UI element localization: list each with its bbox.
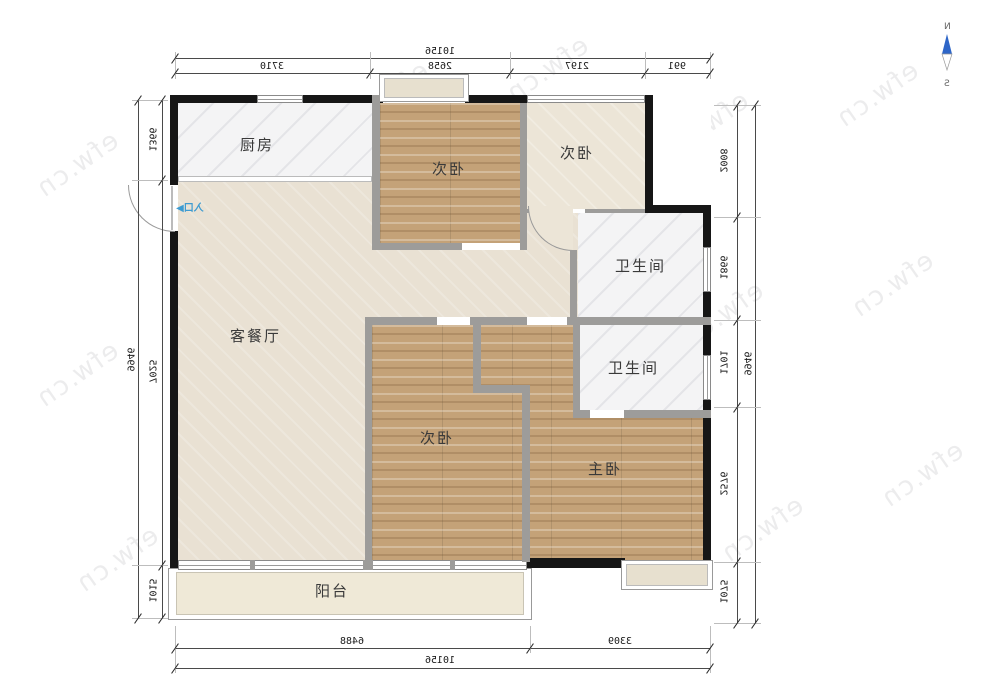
balcony-sliding-window <box>178 560 527 570</box>
entrance-arrow-icon: ▶ <box>176 203 184 214</box>
exterior-notch <box>653 95 711 206</box>
compass-south-label: S <box>944 79 950 89</box>
door-opening <box>462 243 520 250</box>
door-opening <box>527 317 567 325</box>
dim-line-bottom-segments <box>175 648 711 649</box>
exterior-wall-segment <box>703 400 711 568</box>
room-label-bedroom-top: 次卧 <box>432 158 466 179</box>
room-label-kitchen: 厨房 <box>240 134 274 155</box>
room-label-bathroom-lower: 卫生间 <box>608 357 659 378</box>
compass: N S <box>936 14 958 90</box>
interior-wall-segment <box>372 243 462 250</box>
exterior-wall-segment <box>527 558 625 568</box>
exterior-wall-segment <box>645 95 653 213</box>
dim-line-right-segments <box>737 105 738 624</box>
dim-label-top-seg-2: 2658 <box>414 61 466 72</box>
dim-label-top-total: 10156 <box>414 46 466 57</box>
window <box>257 95 303 103</box>
dim-line-left-total <box>138 100 139 619</box>
entry-door-swing-arc <box>128 185 175 232</box>
exterior-wall-segment <box>170 95 257 103</box>
bay-window-sill <box>626 564 708 586</box>
balcony-floor <box>176 572 524 615</box>
window <box>703 247 711 292</box>
dim-label-left-seg-2: 7025 <box>147 346 158 398</box>
dim-line-bottom-total <box>175 668 711 669</box>
dim-label-left-seg-1: 1366 <box>147 114 158 166</box>
window-mullion <box>450 560 455 570</box>
dim-label-right-seg-1: 2008 <box>718 135 729 187</box>
compass-north-label: N <box>944 22 951 32</box>
room-label-living: 客餐厅 <box>230 325 281 346</box>
interior-wall-segment <box>520 103 527 250</box>
interior-wall-segment <box>365 317 372 562</box>
dim-label-top-seg-1: 3710 <box>246 61 298 72</box>
dim-line-right-total <box>755 105 756 624</box>
watermark: efw.cn <box>875 436 970 515</box>
watermark: efw.cn <box>30 126 125 205</box>
exterior-wall-segment <box>170 95 178 185</box>
watermark: efw.cn <box>30 336 125 415</box>
dim-label-right-seg-5: 1075 <box>718 566 729 618</box>
dim-label-top-seg-4: 991 <box>651 61 703 72</box>
watermark: efw.cn <box>845 246 940 325</box>
dim-extension <box>645 52 646 79</box>
bay-window-sill <box>384 78 464 98</box>
interior-wall-segment <box>372 95 380 250</box>
north-arrow-icon <box>940 33 954 71</box>
exterior-wall-segment <box>645 205 711 213</box>
kitchen-counter-line <box>178 176 372 182</box>
dim-label-right-seg-3: 1701 <box>718 337 729 389</box>
window <box>703 355 711 400</box>
door-opening <box>437 317 470 325</box>
exterior-wall-segment <box>170 230 178 568</box>
entrance-label: 入口 <box>184 203 204 214</box>
room-label-master: 主卧 <box>588 458 622 479</box>
dim-line-top-segments <box>175 73 711 74</box>
dim-label-right-total: 9946 <box>742 338 753 390</box>
door-opening <box>590 410 624 418</box>
room-label-balcony: 阳台 <box>315 580 349 601</box>
dim-label-bottom-seg-2: 3309 <box>594 636 646 647</box>
dim-extension <box>510 52 511 79</box>
interior-wall-segment <box>473 317 481 392</box>
dim-line-top-total <box>175 58 711 59</box>
dim-label-left-seg-3: 1015 <box>147 565 158 617</box>
dim-label-right-seg-4: 2576 <box>718 458 729 510</box>
room-label-bedroom-top-right: 次卧 <box>560 142 594 163</box>
interior-wall-segment <box>522 392 530 562</box>
entrance-marker: 入口▶ <box>176 199 204 214</box>
floorplan-canvas: efw.cn efw.cn efw.cn efw.cn efw.cn efw.c… <box>0 0 1000 685</box>
window <box>527 95 645 103</box>
room-label-bathroom-upper: 卫生间 <box>615 255 666 276</box>
exterior-wall-segment <box>465 95 527 103</box>
exterior-wall-segment <box>303 95 383 103</box>
dim-extension <box>370 52 371 79</box>
dim-label-bottom-total: 10156 <box>414 655 466 666</box>
dim-label-bottom-seg-1: 6488 <box>326 636 378 647</box>
exterior-wall-segment <box>703 213 711 247</box>
dim-label-top-seg-3: 2197 <box>551 61 603 72</box>
watermark: efw.cn <box>830 56 925 135</box>
floor-kitchen <box>178 103 372 177</box>
watermark: efw.cn <box>715 491 810 570</box>
interior-wall-segment <box>573 325 580 418</box>
interior-wall-segment <box>570 250 577 317</box>
dim-label-right-seg-2: 1866 <box>718 242 729 294</box>
window-mullion <box>250 560 255 570</box>
interior-wall-segment <box>573 317 711 325</box>
dim-label-left-total: 9946 <box>125 334 136 386</box>
room-label-bedroom-bottom: 次卧 <box>420 427 454 448</box>
